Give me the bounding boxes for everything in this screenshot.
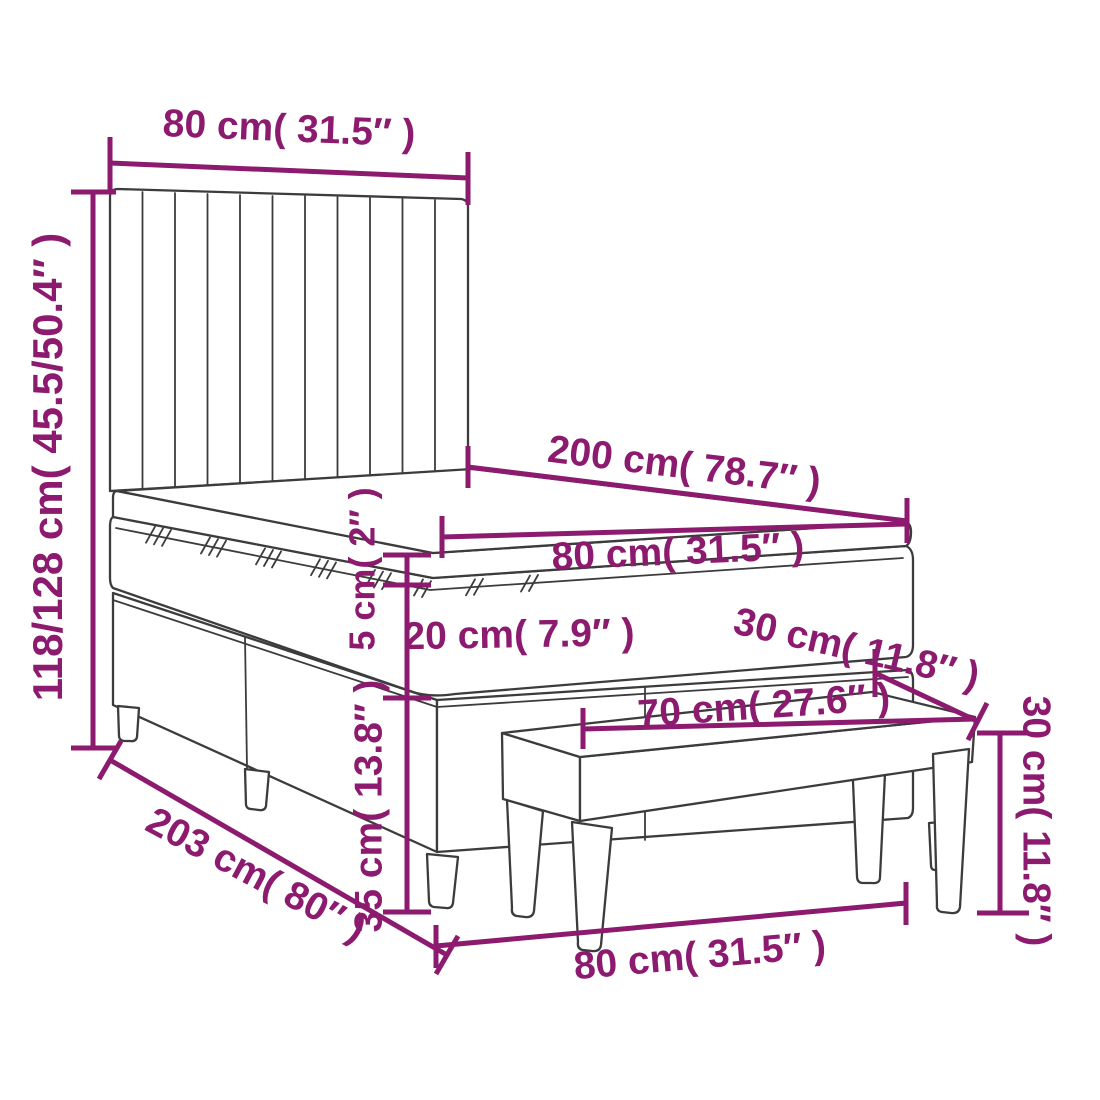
bed-leg bbox=[245, 769, 269, 810]
headboard bbox=[110, 189, 468, 491]
dim-label-overall-height: 118/128 cm( 45.5/50.4″ ) bbox=[24, 233, 71, 701]
dim-label-topper-thickness: 5 cm( 2″ ) bbox=[342, 487, 383, 650]
dim-label-mattress-thickness: 20 cm( 7.9″ ) bbox=[403, 611, 635, 658]
bed-leg bbox=[427, 854, 458, 908]
dim-label-base-height: 35 cm( 13.8″ ) bbox=[347, 680, 390, 933]
dim-label-bench-height: 30 cm( 11.8″ ) bbox=[1015, 696, 1058, 947]
bed-leg bbox=[118, 706, 139, 741]
diagram-canvas: 80 cm( 31.5″ ) 118/128 cm( 45.5/50.4″ ) … bbox=[0, 0, 1100, 1100]
dimension-diagram: 80 cm( 31.5″ ) 118/128 cm( 45.5/50.4″ ) … bbox=[0, 0, 1100, 1100]
